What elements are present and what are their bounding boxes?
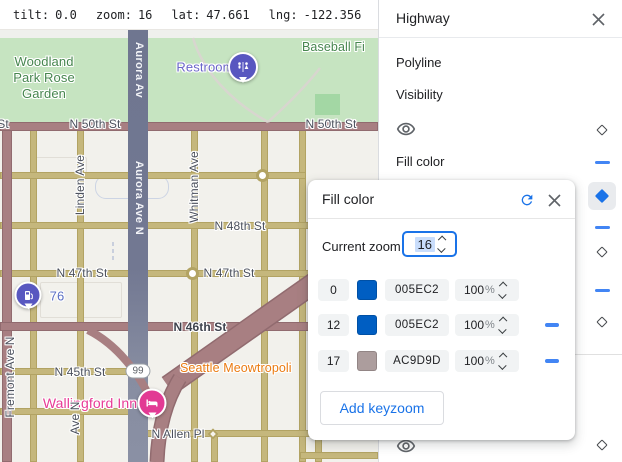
lng-value: -122.356 xyxy=(304,8,362,22)
app-window: tilt:0.0 zoom:16 lat:47.661 lng:-122.356 xyxy=(0,0,622,462)
fremont-ave-label: Fremont Ave N xyxy=(3,336,17,417)
value-state-diamond-icon[interactable] xyxy=(595,245,609,259)
opacity-value: 100 xyxy=(464,283,484,297)
restroom-label: Restroom xyxy=(176,60,233,75)
baseball-field-label: Baseball Fi xyxy=(302,40,365,54)
value-state-diamond-icon[interactable] xyxy=(595,315,609,329)
property-fill-color-label[interactable]: Fill color xyxy=(396,154,444,169)
hotel-pin xyxy=(138,389,167,418)
close-icon xyxy=(548,194,561,207)
lng-label: lng: xyxy=(269,8,298,22)
restroom-pin xyxy=(228,52,258,82)
percent-sign: % xyxy=(485,319,495,331)
gas-pump-icon xyxy=(22,289,34,301)
whitman-ave-label: Whitman Ave xyxy=(187,151,201,223)
opacity-value: 100 xyxy=(464,354,484,368)
tilt-label: tilt: xyxy=(13,8,49,22)
keyzoom-row: 0 005EC2 100 % xyxy=(308,279,575,301)
opacity-chevrons[interactable] xyxy=(500,318,506,332)
eye-icon xyxy=(396,119,416,139)
lat-label: lat: xyxy=(171,8,200,22)
street-label-partial: St xyxy=(0,117,9,131)
lat-value: 47.661 xyxy=(206,8,249,22)
n47th-label-east: N 47th St xyxy=(204,266,255,280)
n-allen-pl-label: N Allen Pl xyxy=(151,427,204,441)
current-zoom-label: Current zoom xyxy=(322,239,401,254)
lng-readout: lng:-122.356 xyxy=(269,8,362,22)
remove-keyzoom-button[interactable] xyxy=(545,323,559,327)
tilt-readout: tilt:0.0 xyxy=(13,8,77,22)
keyzoom-level-field[interactable]: 17 xyxy=(318,350,349,372)
percent-sign: % xyxy=(485,355,495,367)
wallingford-inn-label: Wallingford Inn xyxy=(43,395,137,411)
gas-station-pin xyxy=(15,282,42,309)
color-swatch[interactable] xyxy=(357,351,377,371)
n50th-label-west: N 50th St xyxy=(70,117,121,131)
chevron-down-icon[interactable] xyxy=(438,244,446,252)
keyzoom-level-field[interactable]: 0 xyxy=(318,279,349,301)
route-99-shield: 99 xyxy=(125,364,150,379)
color-hex-field[interactable]: AC9D9D xyxy=(385,350,449,372)
current-zoom-stepper[interactable]: 16 xyxy=(402,231,457,257)
map-status-toolbar: tilt:0.0 zoom:16 lat:47.661 lng:-122.356 xyxy=(0,0,378,30)
bed-icon xyxy=(146,397,159,410)
keyzoom-row: 17 AC9D9D 100 % xyxy=(308,350,575,372)
property-visibility-label[interactable]: Visibility xyxy=(396,87,443,102)
dialog-close-button[interactable] xyxy=(546,192,562,208)
percent-sign: % xyxy=(485,284,495,296)
reset-button[interactable] xyxy=(518,191,536,209)
road-junction-circle xyxy=(256,169,269,182)
linden-ave-label: Linden Ave xyxy=(73,155,87,215)
opacity-chevrons[interactable] xyxy=(500,354,506,368)
n47th-label-west: N 47th St xyxy=(57,266,108,280)
opacity-value: 100 xyxy=(464,318,484,332)
color-hex-field[interactable]: 005EC2 xyxy=(385,279,449,301)
value-state-dash-icon[interactable] xyxy=(594,287,610,293)
ave-n-label: Ave N xyxy=(68,402,82,435)
meowtropolitan-label: Seattle Meowtropoli xyxy=(180,361,292,375)
zoom-readout: zoom:16 xyxy=(96,8,153,22)
opacity-chevrons[interactable] xyxy=(500,283,506,297)
zoom-label: zoom: xyxy=(96,8,132,22)
value-state-dash-icon[interactable] xyxy=(594,224,610,230)
section-polyline[interactable]: Polyline xyxy=(396,55,442,70)
dialog-title: Fill color xyxy=(322,191,374,207)
value-state-diamond-icon[interactable] xyxy=(595,438,609,452)
n46th-label: N 46th St xyxy=(174,320,227,334)
fill-color-dialog: Fill color Current zoom 16 0 005EC2 100 xyxy=(308,180,575,440)
restroom-icon xyxy=(236,60,250,74)
aurora-ave-label: Aurora Ave N xyxy=(133,161,145,235)
gas-station-label: 76 xyxy=(50,289,65,304)
current-zoom-value[interactable]: 16 xyxy=(415,237,435,252)
n48th-label: N 48th St xyxy=(215,219,266,233)
color-swatch[interactable] xyxy=(357,280,377,300)
opacity-field[interactable]: 100 % xyxy=(455,350,519,372)
n50th-label-east: N 50th St xyxy=(306,117,357,131)
panel-title: Highway xyxy=(396,0,450,37)
reset-icon xyxy=(519,192,535,208)
opacity-field[interactable]: 100 % xyxy=(455,279,519,301)
lat-readout: lat:47.661 xyxy=(171,8,249,22)
tilt-value: 0.0 xyxy=(55,8,77,22)
panel-close-button[interactable] xyxy=(588,9,608,29)
chevron-up-icon[interactable] xyxy=(438,236,446,244)
color-swatch[interactable] xyxy=(357,315,377,335)
value-state-diamond-icon[interactable] xyxy=(595,123,609,137)
selected-value-chip[interactable] xyxy=(588,182,616,210)
keyzoom-row: 12 005EC2 100 % xyxy=(308,314,575,336)
park-label: Woodland Park Rose Garden xyxy=(13,54,75,102)
zoom-value: 16 xyxy=(138,8,152,22)
aurora-ave-label-top: Aurora Av xyxy=(133,42,145,98)
road-junction-circle xyxy=(186,267,199,280)
close-icon xyxy=(592,13,605,26)
diamond-filled-icon xyxy=(595,189,609,203)
panel-divider xyxy=(379,37,622,38)
stepper-chevrons[interactable] xyxy=(439,237,445,251)
add-keyzoom-button[interactable]: Add keyzoom xyxy=(320,391,444,425)
color-hex-field[interactable]: 005EC2 xyxy=(385,314,449,336)
visibility-toggle[interactable] xyxy=(395,120,417,138)
keyzoom-level-field[interactable]: 12 xyxy=(318,314,349,336)
opacity-field[interactable]: 100 % xyxy=(455,314,519,336)
dialog-divider xyxy=(308,218,575,219)
remove-keyzoom-button[interactable] xyxy=(545,359,559,363)
n45th-label: N 45th St xyxy=(55,365,106,379)
value-state-dash-icon[interactable] xyxy=(594,159,610,165)
